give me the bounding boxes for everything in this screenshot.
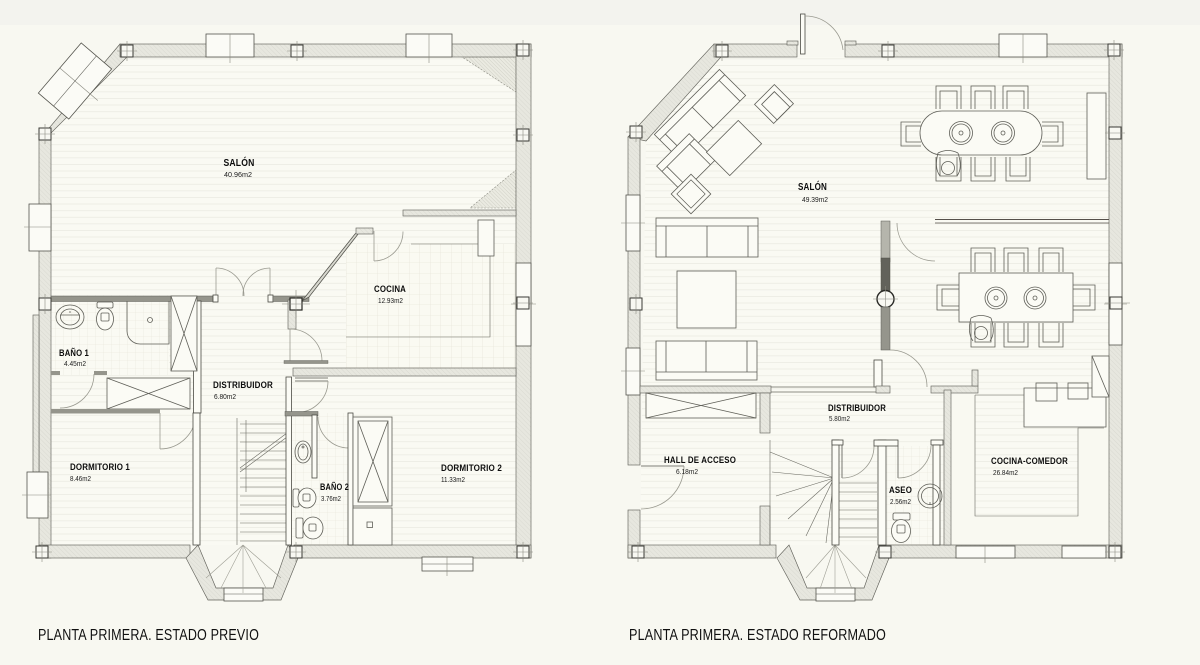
svg-text:COCINA: COCINA [374, 284, 406, 295]
svg-text:HALL DE ACCESO: HALL DE ACCESO [664, 455, 736, 466]
svg-text:BAÑO 1: BAÑO 1 [59, 348, 89, 359]
svg-text:DORMITORIO 2: DORMITORIO 2 [441, 463, 502, 474]
svg-text:SALÓN: SALÓN [798, 180, 827, 193]
svg-text:3.76m2: 3.76m2 [321, 496, 341, 503]
svg-text:8.46m2: 8.46m2 [70, 476, 91, 483]
svg-text:12.93m2: 12.93m2 [378, 298, 403, 305]
svg-text:DORMITORIO 1: DORMITORIO 1 [70, 462, 130, 473]
svg-text:PLANTA PRIMERA. ESTADO PREVIO: PLANTA PRIMERA. ESTADO PREVIO [38, 627, 259, 644]
svg-text:26.84m2: 26.84m2 [993, 470, 1018, 477]
svg-text:BAÑO 2: BAÑO 2 [320, 482, 349, 493]
svg-text:2.56m2: 2.56m2 [890, 499, 911, 506]
svg-text:COCINA-COMEDOR: COCINA-COMEDOR [991, 456, 1068, 467]
svg-text:11.33m2: 11.33m2 [441, 477, 465, 484]
svg-text:DISTRIBUIDOR: DISTRIBUIDOR [828, 403, 886, 414]
svg-text:6.18m2: 6.18m2 [676, 469, 698, 476]
svg-text:PLANTA PRIMERA. ESTADO REFORMA: PLANTA PRIMERA. ESTADO REFORMADO [629, 627, 886, 644]
svg-text:40.96m2: 40.96m2 [224, 172, 252, 179]
svg-text:5.80m2: 5.80m2 [829, 416, 850, 423]
svg-text:4.45m2: 4.45m2 [64, 361, 86, 368]
svg-text:ASEO: ASEO [889, 485, 912, 496]
svg-text:SALÓN: SALÓN [224, 156, 255, 169]
svg-text:DISTRIBUIDOR: DISTRIBUIDOR [213, 380, 273, 391]
svg-text:6.80m2: 6.80m2 [214, 394, 236, 401]
svg-text:49.39m2: 49.39m2 [802, 197, 828, 204]
